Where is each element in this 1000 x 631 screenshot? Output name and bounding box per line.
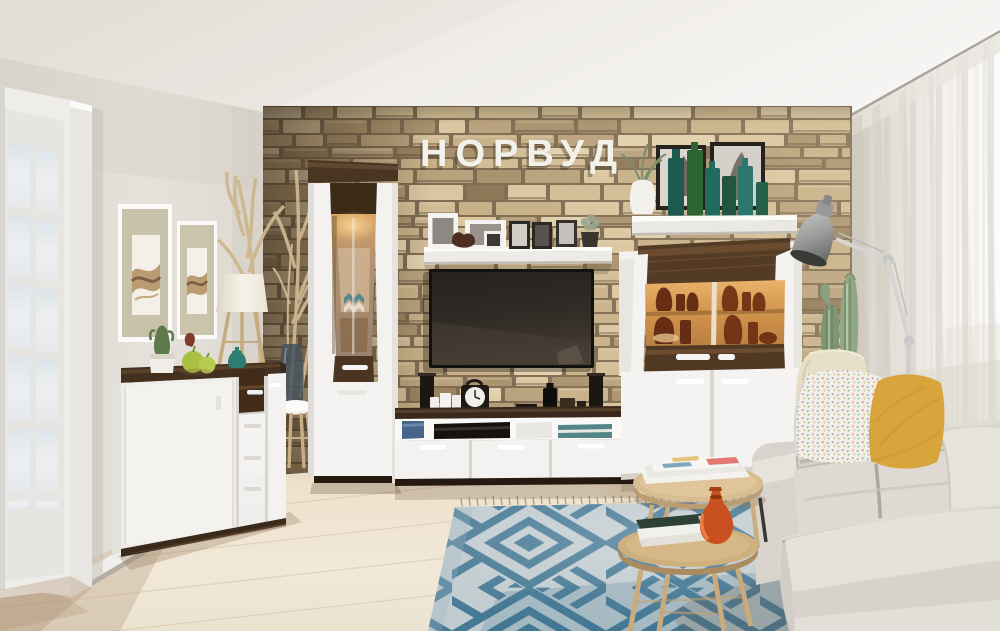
svg-text:НОРВУД: НОРВУД — [420, 133, 625, 175]
